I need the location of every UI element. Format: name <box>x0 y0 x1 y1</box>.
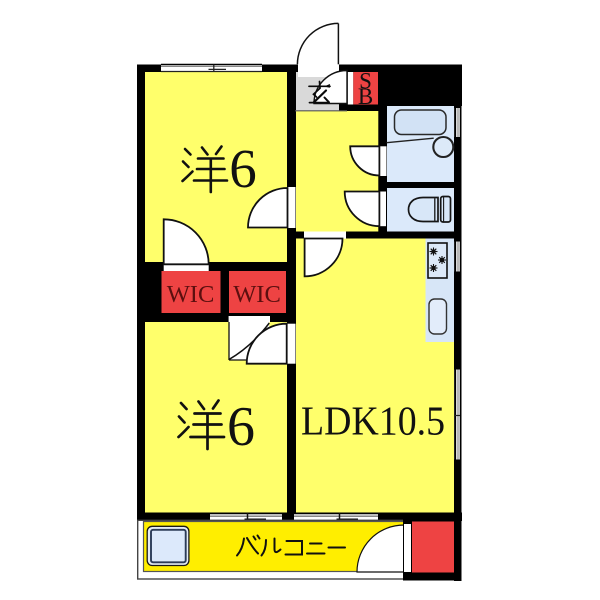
svg-text:LDK10.5: LDK10.5 <box>301 398 445 444</box>
svg-text:6: 6 <box>229 138 257 199</box>
svg-text:WIC: WIC <box>233 281 281 308</box>
svg-text:WIC: WIC <box>167 281 215 308</box>
svg-text:B: B <box>358 84 373 109</box>
svg-text:6: 6 <box>227 396 255 458</box>
